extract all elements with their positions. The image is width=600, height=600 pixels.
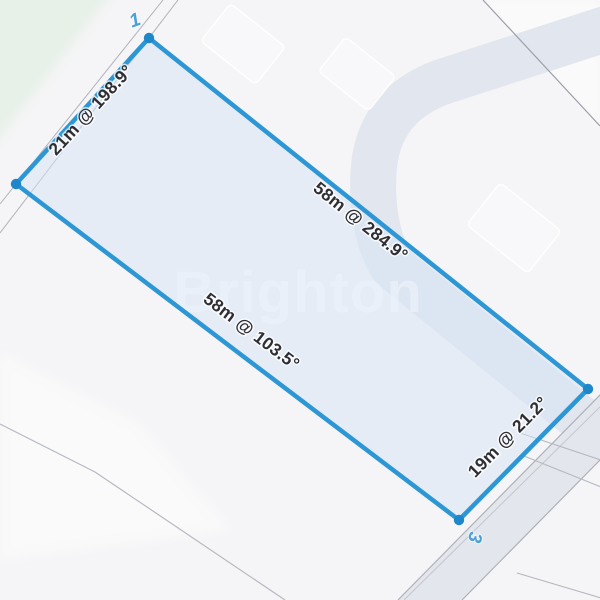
- map-canvas[interactable]: Brighton 21m @ 198.9° 58m @ 284.9° 58m @…: [0, 0, 600, 600]
- vertex-dot-east[interactable]: [583, 384, 593, 394]
- map-viewport[interactable]: Brighton 21m @ 198.9° 58m @ 284.9° 58m @…: [0, 0, 600, 600]
- vertex-dot-south[interactable]: [454, 515, 464, 525]
- vertex-dot-west[interactable]: [11, 179, 21, 189]
- vertex-dot-north[interactable]: [144, 33, 154, 43]
